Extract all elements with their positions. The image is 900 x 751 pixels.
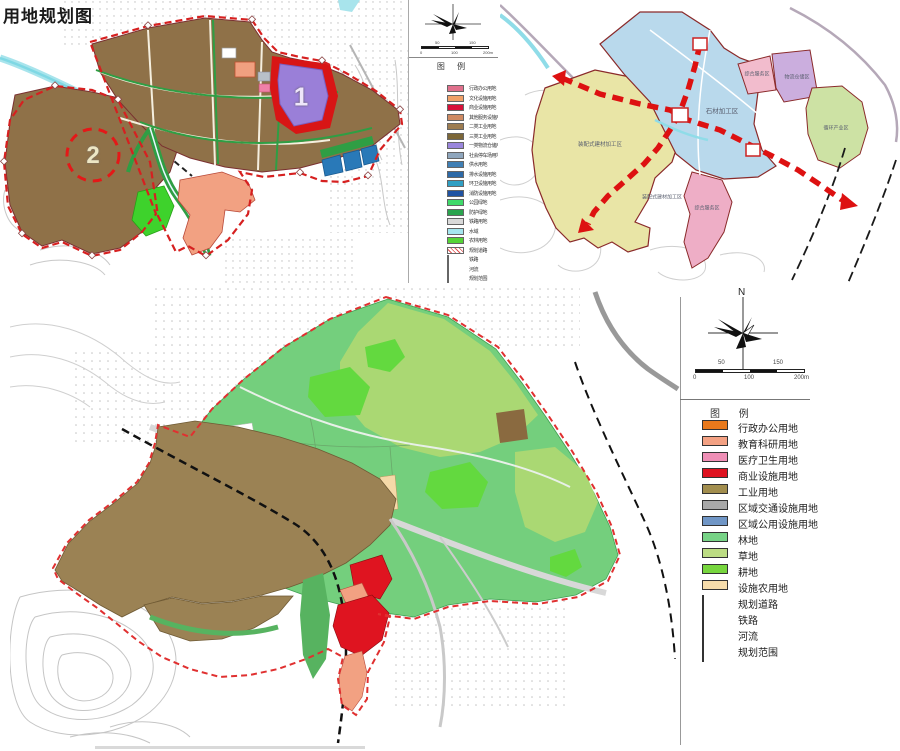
legend-item: 教育科研用地: [680, 436, 900, 450]
legend-label: 规划范围: [738, 644, 778, 659]
terrain-texture: [225, 238, 355, 283]
zone-label-service-top: 综合服务区: [744, 71, 769, 78]
legend-item: 环卫设施用地: [409, 180, 498, 189]
legend-swatch: [702, 468, 728, 478]
legend-item: 消防设施用地: [409, 190, 498, 199]
legend-item: 排水设施用地: [409, 171, 498, 180]
legend-item: 铁路: [680, 612, 900, 626]
scale-tick: 50: [718, 360, 725, 366]
legend-item: 耕地: [680, 564, 900, 578]
legend-item: 公园绿地: [409, 199, 498, 208]
legend-item: 三类工业用地: [409, 133, 498, 142]
zone-label-prefab-1: 装配式建材加工区: [578, 140, 622, 148]
legend-label: 行政办公用地: [469, 85, 496, 92]
legend-label: 其他服务设施用地: [469, 114, 498, 121]
legend-swatch: [447, 123, 464, 130]
scale-tick: 200m: [483, 50, 493, 55]
legend-item: 规划道路: [409, 247, 498, 256]
legend-item: 行政办公用地: [680, 420, 900, 434]
map-panel-top-left: 1 2 50 150 0 100 200m 图 例: [0, 0, 497, 283]
legend-item: 行政办公用地: [409, 85, 498, 94]
scale-tick: 150: [773, 360, 783, 366]
legend-item: 林地: [680, 532, 900, 546]
legend-swatch: [702, 452, 728, 462]
legend-swatch-boundary: [702, 643, 704, 662]
zone-label-stone: 石材加工区: [706, 105, 739, 115]
legend-label: 排水设施用地: [469, 171, 496, 178]
admin-cell: [259, 84, 270, 92]
map-panel-top-right: 石材加工区 综合服务区 物流仓储区 循环产业区 装配式建材加工区 装配式建材加工…: [500, 0, 900, 283]
legend-swatch: [447, 152, 464, 159]
legend-label: 河流: [738, 628, 758, 643]
legend-label: 一类物流仓储用地: [469, 142, 498, 149]
legend-swatch: [702, 580, 728, 590]
legend-item: 商业设施用地: [680, 468, 900, 482]
legend-swatch: [447, 142, 464, 149]
legend-swatch: [447, 104, 464, 111]
legend-item: 铁路用地: [409, 218, 498, 227]
legend-title: 图 例: [710, 405, 757, 420]
legend-label: 草地: [738, 548, 758, 563]
legend-item: 工业用地: [680, 484, 900, 498]
legend-swatch: [447, 237, 464, 244]
legend-label: 林地: [738, 532, 758, 547]
legend-label: 工业用地: [738, 484, 778, 499]
scale-tick: 150: [469, 40, 476, 45]
edge-artifact: [95, 746, 365, 749]
railway: [792, 148, 845, 280]
zone-label-service-bottom: 综合服务区: [694, 205, 719, 212]
legend-label: 农林用地: [469, 237, 487, 244]
green-buffer: [300, 573, 330, 679]
railway: [848, 160, 896, 283]
road-line: [500, 5, 575, 80]
legend-label: 区域交通设施用地: [738, 500, 818, 515]
legend-item: 河流: [680, 628, 900, 642]
parking-cell: [258, 72, 270, 81]
legend-item: 医疗卫生用地: [680, 452, 900, 466]
scale-bar: [695, 369, 805, 373]
industrial-patch: [496, 409, 528, 443]
legend-label: 商业设施用地: [469, 104, 496, 111]
scale-bar: [421, 46, 489, 49]
legend-label: 公园绿地: [469, 199, 487, 206]
legend-label: 规划道路: [469, 247, 487, 254]
legend-item: 水域: [409, 228, 498, 237]
legend-item: 区域交通设施用地: [680, 500, 900, 514]
legend-item: 文化设施用地: [409, 95, 498, 104]
map-panel-bottom: [10, 287, 680, 751]
legend-label: 医疗卫生用地: [738, 452, 798, 467]
legend-label: 消防设施用地: [469, 190, 496, 197]
legend-swatch: [702, 564, 728, 574]
legend-label: 铁路用地: [469, 218, 487, 225]
legend-swatch: [447, 171, 464, 178]
legend-label: 环卫设施用地: [469, 180, 496, 187]
legend-swatch: [447, 199, 464, 206]
map-b-drawing: [500, 0, 900, 283]
scale-tick: 0: [693, 375, 696, 381]
legend-swatch: [447, 133, 464, 140]
legend-swatch: [702, 548, 728, 558]
legend-label: 防护绿地: [469, 209, 487, 216]
legend-label: 铁路: [738, 612, 758, 627]
legend-label: 耕地: [738, 564, 758, 579]
legend-item: 规划范围: [680, 644, 900, 658]
legend-item: 二类工业用地: [409, 123, 498, 132]
legend-item: 一类物流仓储用地: [409, 142, 498, 151]
zone-label-circular: 循环产业区: [823, 125, 848, 132]
legend-label: 区域公用设施用地: [738, 516, 818, 531]
scale-tick: 50: [435, 40, 439, 45]
scale-tick: 100: [744, 375, 754, 381]
commercial-zone: [333, 595, 389, 656]
legend-item: 河流: [409, 266, 498, 275]
legend-item: 农林用地: [409, 237, 498, 246]
legend-title: 图 例: [409, 61, 498, 72]
divider: [409, 57, 498, 58]
legend-swatch: [702, 420, 728, 430]
zone-label-logistics: 物流仓储区: [784, 74, 809, 81]
site-marker-2: 2: [86, 142, 99, 170]
legend-label: 供水用地: [469, 161, 487, 168]
legend-label: 三类工业用地: [469, 133, 496, 140]
legend-label: 社会停车场用地: [469, 152, 498, 159]
scale-tick: 0: [420, 50, 422, 55]
river: [500, 15, 548, 68]
legend-item: 草地: [680, 548, 900, 562]
legend-swatch: [702, 516, 728, 526]
legend-label: 水域: [469, 228, 478, 235]
legend-swatch: [447, 228, 464, 235]
site-marker-1: 1: [294, 82, 308, 113]
legend-swatch: [447, 114, 464, 121]
legend-swatch: [447, 218, 464, 225]
legend-swatch: [702, 436, 728, 446]
legend-item: 其他服务设施用地: [409, 114, 498, 123]
legend-item: 设施农用地: [680, 580, 900, 594]
legend-swatch: [447, 161, 464, 168]
legend-label: 规划道路: [738, 596, 778, 611]
legend-label: 二类工业用地: [469, 123, 496, 130]
map-a-drawing: [0, 0, 408, 283]
page-title: 用地规划图: [3, 2, 93, 27]
legend-item: 规划道路: [680, 596, 900, 610]
legend-item: 防护绿地: [409, 209, 498, 218]
legend-label: 河流: [469, 266, 478, 273]
scale-tick: 200m: [794, 375, 809, 381]
legend-label: 文化设施用地: [469, 95, 496, 102]
legend-label: 铁路: [469, 256, 478, 263]
legend-swatch: [702, 500, 728, 510]
legend-item: 铁路: [409, 256, 498, 265]
legend-swatch: [447, 180, 464, 187]
legend-label: 设施农用地: [738, 580, 788, 595]
legend-item: 供水用地: [409, 161, 498, 170]
legend-swatch: [447, 85, 464, 92]
legend-swatch-boundary: [447, 274, 449, 283]
legend-label: 商业设施用地: [738, 468, 798, 483]
legend-item: 规划范围: [409, 275, 498, 283]
zone-label-prefab-2: 装配式建材加工区: [642, 194, 682, 201]
legend-swatch-road: [447, 247, 464, 254]
legend-swatch: [702, 532, 728, 542]
legend-swatch: [447, 190, 464, 197]
legend-item: 商业设施用地: [409, 104, 498, 113]
land-use-planning-figure: 用地规划图: [0, 0, 900, 751]
legend-swatch: [447, 95, 464, 102]
legend-label: 规划范围: [469, 275, 487, 282]
facility-cell: [222, 48, 236, 58]
service-cell: [235, 62, 255, 77]
legend-item: 社会停车场用地: [409, 152, 498, 161]
divider: [680, 399, 810, 400]
legend-label: 行政办公用地: [738, 420, 798, 435]
grass-land: [515, 447, 598, 542]
compass-rose-icon: [423, 2, 483, 42]
legend-panel-a: 50 150 0 100 200m 图 例 行政办公用地 文化设施用地 商业设施…: [408, 0, 498, 283]
highway: [595, 292, 678, 389]
map-c-drawing: [10, 287, 680, 751]
scale-tick: 100: [451, 50, 458, 55]
legend-label: 教育科研用地: [738, 436, 798, 451]
legend-panel-c: N 50 150 0 100 200m 图 例 行政办公用地 教育科研用地 医疗…: [680, 287, 900, 751]
legend-swatch: [702, 484, 728, 494]
legend-swatch: [447, 209, 464, 216]
legend-item: 区域公用设施用地: [680, 516, 900, 530]
